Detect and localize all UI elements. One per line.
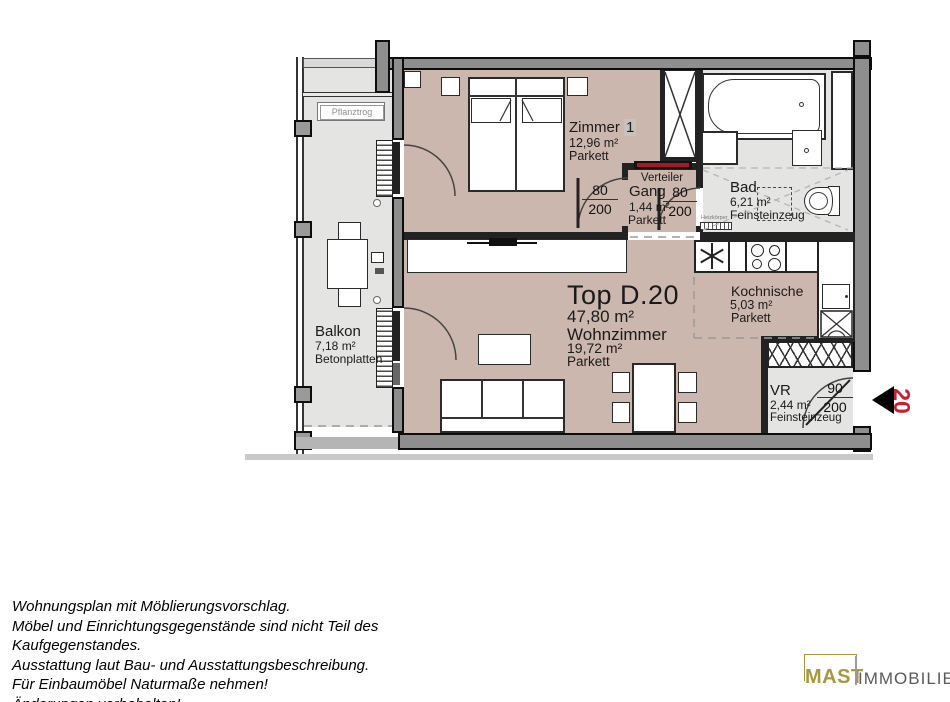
kochnische-name: Kochnische [731,284,803,299]
pillow-fold-mark [500,100,511,121]
heizkoerper-label: Heizkörper [701,216,728,222]
disclaimer-line: Für Einbaumöbel Naturmaße nehmen! [12,675,378,695]
door-dim-zimmer1: 80 200 [582,182,618,217]
pillow-fold-mark [522,100,533,121]
bad-name: Bad [730,180,757,196]
vr-area: 2,44 m² [770,399,811,412]
kochnische-floor: Parkett [731,312,771,325]
door-arc-zimmer1-balcony [404,145,455,196]
balkon-name: Balkon [315,324,361,340]
room-number: 1 [624,119,636,136]
vr-name: VR [770,383,791,399]
gang-area: 1,44 m² [629,201,670,214]
wohnzimmer-floor: Parkett [567,355,610,369]
balkon-floor: Betonplatten [315,353,382,366]
door-arc-wohnzimmer-balcony [404,308,456,360]
lower-structure-band [296,437,398,449]
logo-suffix: IMMOBILIEN [858,670,950,688]
gang-name: Gang [629,184,666,200]
unit-number-label: 20 [890,381,914,421]
site-line [245,454,873,460]
disclaimer-line: Änderungen vorbehalten! [12,695,378,702]
disclaimer-line: Möbel und Einrichtungsgegenstände sind n… [12,617,378,637]
logo-separator [855,656,857,685]
door-dim-entrance: 90 200 [817,380,853,415]
disclaimer-line: Kaufgegenstandes. [12,636,378,656]
door-dim-width: 80 [663,184,697,200]
zimmer1-floor: Parkett [569,150,609,163]
gang-floor: Parkett [628,214,666,227]
door-dim-height: 200 [582,201,618,217]
logo: MAST IMMOBILIEN [788,650,943,692]
vr-floor: Feinsteinzeug [770,412,842,424]
unit-area: 47,80 m² [567,308,634,326]
zimmer1-label: Zimmer 1 [569,120,636,136]
room-name: Zimmer [569,119,620,136]
balkon-area: 7,18 m² [315,340,356,353]
bad-floor: Feinsteinzeug [730,209,805,222]
door-dim-width: 90 [817,380,853,396]
bad-area: 6,21 m² [730,196,771,209]
floor-plan-page: Pflanztrog [0,0,950,702]
unit-title: Top D.20 [567,281,679,309]
disclaimer-line: Wohnungsplan mit Möblierungsvorschlag. [12,597,378,617]
disclaimer-line: Ausstattung laut Bau- und Ausstattungsbe… [12,656,378,676]
disclaimer-text: Wohnungsplan mit Möblierungsvorschlag. M… [12,597,378,702]
door-dim-width: 80 [582,182,618,198]
